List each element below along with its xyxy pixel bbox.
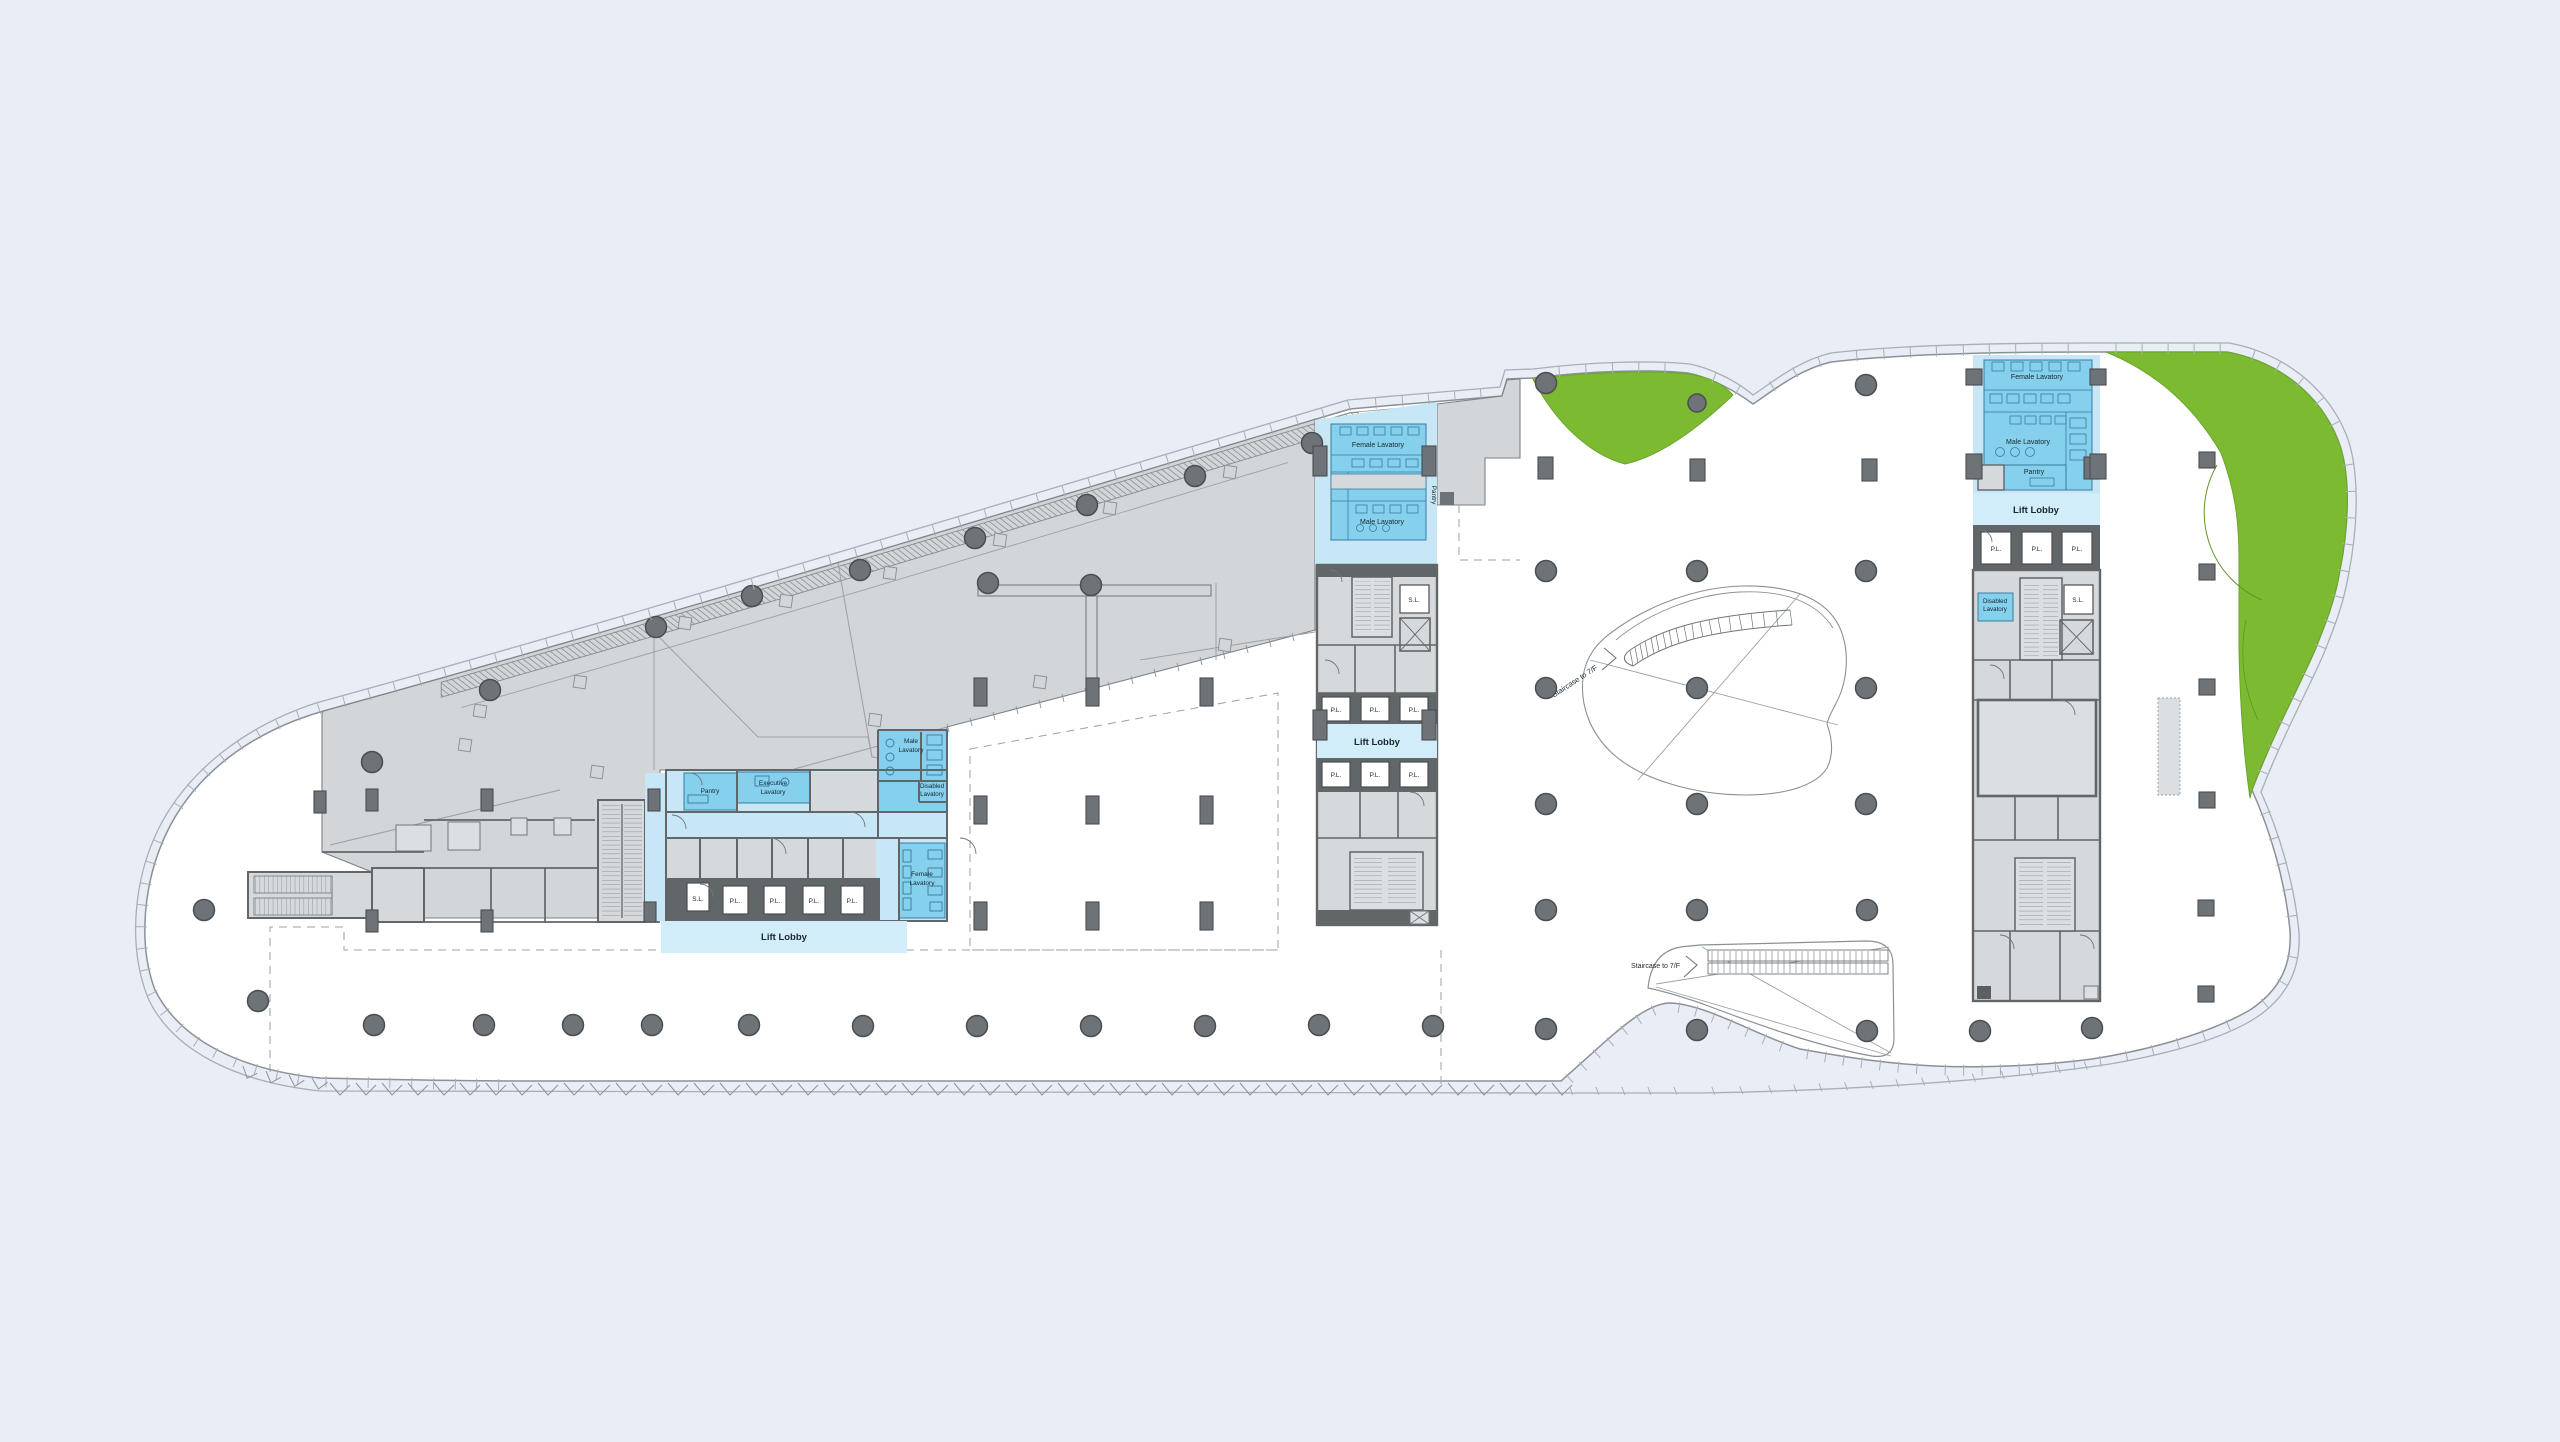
svg-text:P.L.: P.L. (1370, 772, 1381, 779)
svg-text:P.L.: P.L. (1991, 546, 2002, 553)
svg-text:S.L.: S.L. (1408, 597, 1420, 604)
svg-text:S.L.: S.L. (692, 896, 704, 903)
svg-text:Lavatory: Lavatory (1983, 606, 2008, 613)
svg-text:Male Lavatory: Male Lavatory (2006, 439, 2050, 446)
svg-text:Executive: Executive (759, 780, 788, 787)
svg-text:Lavatory: Lavatory (910, 880, 936, 887)
svg-text:Lavatory: Lavatory (920, 791, 945, 798)
svg-text:P.L.: P.L. (1409, 772, 1420, 779)
svg-text:P.L.: P.L. (1331, 707, 1342, 714)
svg-text:P.L.: P.L. (1331, 772, 1342, 779)
svg-text:Lift Lobby: Lift Lobby (1354, 737, 1401, 748)
svg-text:P.L.: P.L. (2072, 546, 2083, 553)
svg-text:P.L.: P.L. (2032, 546, 2043, 553)
svg-text:Lift Lobby: Lift Lobby (2013, 505, 2060, 516)
svg-text:P.L.: P.L. (1409, 707, 1420, 714)
svg-text:Male: Male (904, 738, 918, 745)
svg-text:Female Lavatory: Female Lavatory (2011, 374, 2064, 381)
svg-text:Staircase to 7/F: Staircase to 7/F (1631, 963, 1680, 970)
svg-text:Disabled: Disabled (1983, 598, 2008, 605)
svg-text:Pantry: Pantry (2024, 469, 2045, 476)
svg-text:Disabled: Disabled (920, 783, 945, 790)
svg-text:S.L.: S.L. (2072, 597, 2084, 604)
svg-text:P.L.: P.L. (809, 898, 820, 905)
svg-text:Male Lavatory: Male Lavatory (1360, 519, 1404, 526)
svg-text:P.L.: P.L. (1370, 707, 1381, 714)
svg-text:Lavatory: Lavatory (899, 747, 925, 754)
svg-text:Female: Female (911, 871, 933, 878)
svg-text:Lift Lobby: Lift Lobby (761, 932, 808, 943)
svg-text:P.L.: P.L. (847, 898, 858, 905)
svg-text:Female Lavatory: Female Lavatory (1352, 442, 1405, 449)
svg-text:P.L.: P.L. (770, 898, 781, 905)
svg-text:Pantry: Pantry (1430, 486, 1437, 506)
svg-text:P.L.: P.L. (730, 898, 741, 905)
svg-text:Pantry: Pantry (701, 788, 721, 795)
svg-text:Lavatory: Lavatory (761, 789, 787, 796)
